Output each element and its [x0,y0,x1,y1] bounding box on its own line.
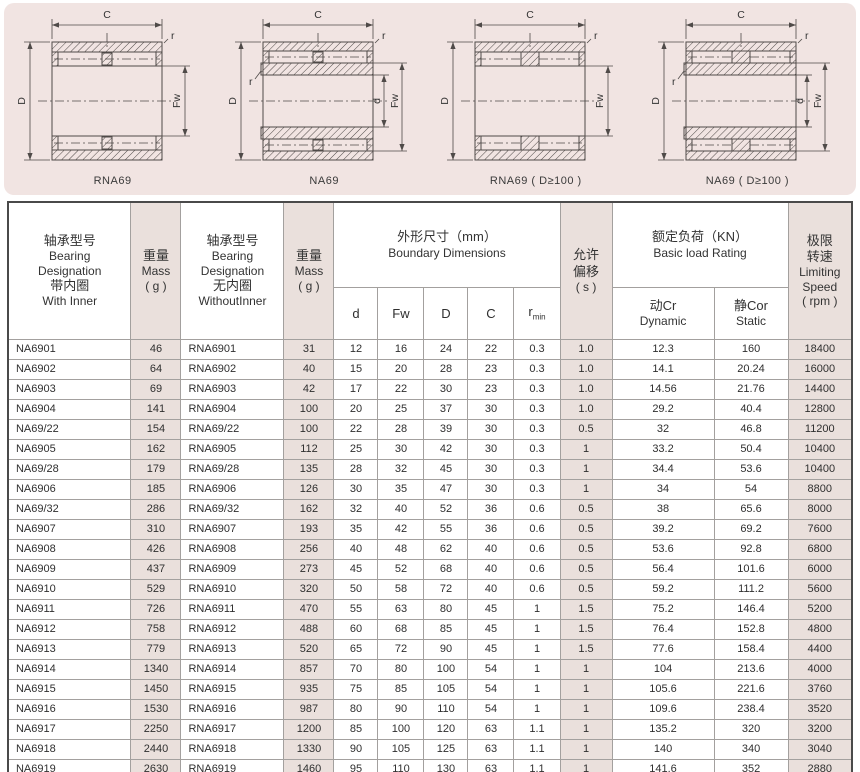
value-cell: 29.2 [612,399,714,419]
table-row: NA6909437RNA6909273455268400.60.556.4101… [8,559,852,579]
drawings-panel: C D [4,3,856,195]
value-cell: 63 [468,719,514,739]
value-cell: 20 [334,399,378,419]
value-cell: 21.76 [714,379,788,399]
value-cell: 104 [612,659,714,679]
value-cell: 126 [284,479,334,499]
value-cell: 34.4 [612,459,714,479]
designation-cell: NA6918 [8,739,131,759]
value-cell: 20.24 [714,359,788,379]
value-cell: 1 [514,659,560,679]
value-cell: 54 [714,479,788,499]
value-cell: 85 [378,679,424,699]
designation-cell: RNA6910 [181,579,284,599]
table-row: NA69151450RNA691593575851055411105.6221.… [8,679,852,699]
designation-cell: NA69/28 [8,459,131,479]
value-cell: 80 [378,659,424,679]
value-cell: 30 [468,479,514,499]
dim-label-Fw: Fw [389,94,401,108]
value-cell: 8000 [788,499,852,519]
label-r: r [798,30,809,43]
value-cell: 109.6 [612,699,714,719]
value-cell: 45 [334,559,378,579]
value-cell: 141.6 [612,759,714,772]
dim-label-r: r [805,30,809,42]
value-cell: 60 [334,619,378,639]
value-cell: 53.6 [612,539,714,559]
value-cell: 160 [714,339,788,359]
value-cell: 0.3 [514,399,560,419]
dim-label-r: r [171,30,175,42]
value-cell: 63 [378,599,424,619]
col-header-rmin: rmin [514,287,560,339]
value-cell: 47 [424,479,468,499]
value-cell: 1 [560,439,612,459]
value-cell: 100 [424,659,468,679]
designation-cell: NA6910 [8,579,131,599]
value-cell: 12 [334,339,378,359]
col-header-d: d [334,287,378,339]
dim-label-D: D [16,97,28,105]
col-header-static: 静Cor Static [714,287,788,339]
value-cell: 4400 [788,639,852,659]
bearing-section-rna69: C D [10,6,216,174]
table-row: NA69/22154RNA69/22100222839300.30.53246.… [8,419,852,439]
value-cell: 488 [284,619,334,639]
label-r: r [164,30,175,43]
value-cell: 100 [378,719,424,739]
value-cell: 320 [284,579,334,599]
dim-label-d: d [371,98,383,104]
value-cell: 0.6 [514,519,560,539]
value-cell: 100 [284,419,334,439]
value-cell: 35 [334,519,378,539]
value-cell: 179 [131,459,181,479]
value-cell: 32 [612,419,714,439]
value-cell: 22 [468,339,514,359]
designation-cell: NA69/22 [8,419,131,439]
value-cell: 23 [468,359,514,379]
dim-label-C: C [103,9,111,21]
value-cell: 45 [424,459,468,479]
label-r-left: r [672,71,684,88]
value-cell: 135.2 [612,719,714,739]
dim-label-Fw: Fw [812,94,824,108]
designation-cell: NA6901 [8,339,131,359]
value-cell: 53.6 [714,459,788,479]
value-cell: 110 [424,699,468,719]
dim-label-C: C [738,9,746,21]
drawing-caption: NA69 [309,175,339,187]
col-group-boundary-dimensions: 外形尺寸（mm） Boundary Dimensions [334,202,560,287]
value-cell: 55 [424,519,468,539]
value-cell: 8800 [788,479,852,499]
designation-cell: RNA69/28 [181,459,284,479]
value-cell: 779 [131,639,181,659]
value-cell: 1 [560,759,612,772]
value-cell: 31 [284,339,334,359]
value-cell: 56.4 [612,559,714,579]
value-cell: 39 [424,419,468,439]
value-cell: 85 [334,719,378,739]
value-cell: 72 [424,579,468,599]
dim-label-C: C [526,9,534,21]
value-cell: 30 [334,479,378,499]
dim-label-C: C [314,9,322,21]
value-cell: 2880 [788,759,852,772]
value-cell: 352 [714,759,788,772]
value-cell: 130 [424,759,468,772]
table-row: NA69172250RNA6917120085100120631.11135.2… [8,719,852,739]
value-cell: 256 [284,539,334,559]
value-cell: 437 [131,559,181,579]
designation-cell: RNA6907 [181,519,284,539]
value-cell: 5200 [788,599,852,619]
value-cell: 46 [131,339,181,359]
designation-cell: RNA6905 [181,439,284,459]
dim-label-r2: r [672,76,676,88]
table-row: NA6904141RNA6904100202537300.31.029.240.… [8,399,852,419]
value-cell: 54 [468,679,514,699]
value-cell: 24 [424,339,468,359]
value-cell: 16 [378,339,424,359]
value-cell: 20 [378,359,424,379]
value-cell: 40 [468,559,514,579]
value-cell: 12.3 [612,339,714,359]
value-cell: 37 [424,399,468,419]
dim-label-r2: r [249,76,253,88]
value-cell: 54 [468,699,514,719]
value-cell: 18400 [788,339,852,359]
designation-cell: RNA6903 [181,379,284,399]
value-cell: 32 [378,459,424,479]
drawing-na69-d100: C D [644,6,850,187]
value-cell: 33.2 [612,439,714,459]
designation-cell: RNA6914 [181,659,284,679]
value-cell: 120 [424,719,468,739]
value-cell: 1.0 [560,399,612,419]
value-cell: 42 [284,379,334,399]
value-cell: 92.8 [714,539,788,559]
col-header-mass-2: 重量 Mass ( g ) [284,202,334,339]
col-header-offset: 允许 偏移 ( s ) [560,202,612,339]
drawing-caption: RNA69 [94,175,132,187]
value-cell: 36 [468,519,514,539]
value-cell: 38 [612,499,714,519]
value-cell: 105.6 [612,679,714,699]
value-cell: 35 [378,479,424,499]
value-cell: 2440 [131,739,181,759]
value-cell: 40 [334,539,378,559]
value-cell: 110 [378,759,424,772]
designation-cell: NA6914 [8,659,131,679]
value-cell: 470 [284,599,334,619]
value-cell: 76.4 [612,619,714,639]
value-cell: 64 [131,359,181,379]
dim-label-D: D [650,97,662,105]
value-cell: 111.2 [714,579,788,599]
value-cell: 529 [131,579,181,599]
value-cell: 30 [424,379,468,399]
value-cell: 45 [468,619,514,639]
value-cell: 25 [378,399,424,419]
designation-cell: NA6909 [8,559,131,579]
value-cell: 63 [468,759,514,772]
designation-cell: NA6908 [8,539,131,559]
value-cell: 85 [424,619,468,639]
table-header: 轴承型号 Bearing Designation 带内圈 With Inner … [8,202,852,339]
value-cell: 0.3 [514,379,560,399]
value-cell: 14.1 [612,359,714,379]
designation-cell: NA6917 [8,719,131,739]
value-cell: 16000 [788,359,852,379]
value-cell: 1.0 [560,379,612,399]
value-cell: 25 [334,439,378,459]
value-cell: 105 [378,739,424,759]
col-header-limiting-speed: 极限 转速 Limiting Speed ( rpm ) [788,202,852,339]
dim-label-D: D [227,97,239,105]
value-cell: 0.3 [514,459,560,479]
label-r: r [375,30,386,43]
value-cell: 726 [131,599,181,619]
drawing-na69: C D [221,6,427,187]
designation-cell: RNA6919 [181,759,284,772]
drawing-rna69: C D [10,6,216,187]
designation-cell: NA6916 [8,699,131,719]
value-cell: 1 [560,679,612,699]
value-cell: 90 [424,639,468,659]
value-cell: 1 [560,719,612,739]
table-row: NA6913779RNA69135206572904511.577.6158.4… [8,639,852,659]
designation-cell: RNA6909 [181,559,284,579]
value-cell: 221.6 [714,679,788,699]
value-cell: 17 [334,379,378,399]
value-cell: 30 [378,439,424,459]
drawing-caption: RNA69 ( D≥100 ) [490,175,582,187]
value-cell: 90 [334,739,378,759]
value-cell: 80 [424,599,468,619]
catalog-page: C D [0,0,860,772]
value-cell: 0.6 [514,559,560,579]
value-cell: 23 [468,379,514,399]
drawing-rna69-d100: C D [433,6,639,187]
value-cell: 426 [131,539,181,559]
value-cell: 1.0 [560,359,612,379]
value-cell: 40.4 [714,399,788,419]
value-cell: 1 [514,699,560,719]
value-cell: 69.2 [714,519,788,539]
value-cell: 28 [424,359,468,379]
value-cell: 11200 [788,419,852,439]
dim-Fw: Fw [796,63,830,151]
value-cell: 36 [468,499,514,519]
dim-label-r: r [594,30,598,42]
value-cell: 0.3 [514,419,560,439]
value-cell: 45 [468,599,514,619]
value-cell: 52 [378,559,424,579]
table-row: NA69/32286RNA69/32162324052360.60.53865.… [8,499,852,519]
value-cell: 987 [284,699,334,719]
value-cell: 1 [514,619,560,639]
value-cell: 30 [468,459,514,479]
dim-label-d: d [794,98,806,104]
col-header-with-inner: 轴承型号 Bearing Designation 带内圈 With Inner [8,202,131,339]
table-row: NA69141340RNA691485770801005411104213.64… [8,659,852,679]
value-cell: 75.2 [612,599,714,619]
value-cell: 1 [514,679,560,699]
value-cell: 65.6 [714,499,788,519]
value-cell: 40 [468,579,514,599]
value-cell: 3200 [788,719,852,739]
dim-label-Fw: Fw [594,94,606,108]
value-cell: 101.6 [714,559,788,579]
value-cell: 7600 [788,519,852,539]
value-cell: 59.2 [612,579,714,599]
dim-Fw: Fw [373,63,407,151]
value-cell: 45 [468,639,514,659]
value-cell: 3040 [788,739,852,759]
value-cell: 193 [284,519,334,539]
value-cell: 273 [284,559,334,579]
value-cell: 32 [334,499,378,519]
table-row: NA690146RNA690131121624220.31.012.316018… [8,339,852,359]
value-cell: 1.5 [560,619,612,639]
value-cell: 28 [378,419,424,439]
value-cell: 48 [378,539,424,559]
value-cell: 105 [424,679,468,699]
dim-label-Fw: Fw [171,94,183,108]
value-cell: 758 [131,619,181,639]
designation-cell: NA6911 [8,599,131,619]
value-cell: 1450 [131,679,181,699]
value-cell: 146.4 [714,599,788,619]
value-cell: 70 [334,659,378,679]
value-cell: 0.5 [560,419,612,439]
value-cell: 0.5 [560,499,612,519]
value-cell: 4800 [788,619,852,639]
designation-cell: RNA6917 [181,719,284,739]
value-cell: 1.5 [560,639,612,659]
value-cell: 2250 [131,719,181,739]
value-cell: 0.5 [560,559,612,579]
value-cell: 28 [334,459,378,479]
table-row: NA69/28179RNA69/28135283245300.3134.453.… [8,459,852,479]
designation-cell: RNA6911 [181,599,284,619]
value-cell: 52 [424,499,468,519]
dim-label-D: D [439,97,451,105]
value-cell: 0.5 [560,539,612,559]
value-cell: 22 [334,419,378,439]
bearing-section-na69: C D [221,6,427,174]
value-cell: 1 [514,599,560,619]
value-cell: 1 [514,639,560,659]
designation-cell: NA6907 [8,519,131,539]
value-cell: 1.1 [514,759,560,772]
value-cell: 340 [714,739,788,759]
value-cell: 68 [378,619,424,639]
value-cell: 1460 [284,759,334,772]
designation-cell: NA6913 [8,639,131,659]
table-row: NA69192630RNA6919146095110130631.11141.6… [8,759,852,772]
value-cell: 310 [131,519,181,539]
value-cell: 14.56 [612,379,714,399]
value-cell: 0.3 [514,479,560,499]
value-cell: 30 [468,419,514,439]
value-cell: 69 [131,379,181,399]
value-cell: 0.6 [514,539,560,559]
value-cell: 1340 [131,659,181,679]
dim-label-r: r [382,30,386,42]
dim-Fw: Fw [585,66,613,136]
designation-cell: RNA6916 [181,699,284,719]
value-cell: 320 [714,719,788,739]
designation-cell: NA6912 [8,619,131,639]
designation-cell: NA69/32 [8,499,131,519]
designation-cell: RNA69/32 [181,499,284,519]
designation-cell: NA6903 [8,379,131,399]
value-cell: 162 [284,499,334,519]
table-row: NA690264RNA690240152028230.31.014.120.24… [8,359,852,379]
value-cell: 30 [468,439,514,459]
designation-cell: RNA6901 [181,339,284,359]
col-header-D: D [424,287,468,339]
value-cell: 90 [378,699,424,719]
value-cell: 30 [468,399,514,419]
value-cell: 1 [560,479,612,499]
value-cell: 1.5 [560,599,612,619]
bearing-section-rna69-d100: C D [433,6,639,174]
table-row: NA6911726RNA69114705563804511.575.2146.4… [8,599,852,619]
bearing-table: 轴承型号 Bearing Designation 带内圈 With Inner … [7,201,853,772]
value-cell: 34 [612,479,714,499]
designation-cell: NA6905 [8,439,131,459]
value-cell: 286 [131,499,181,519]
value-cell: 15 [334,359,378,379]
value-cell: 0.3 [514,439,560,459]
value-cell: 1 [560,459,612,479]
table-row: NA6908426RNA6908256404862400.60.553.692.… [8,539,852,559]
designation-cell: RNA69/22 [181,419,284,439]
value-cell: 1.1 [514,719,560,739]
table-row: NA6905162RNA6905112253042300.3133.250.41… [8,439,852,459]
drawing-caption: NA69 ( D≥100 ) [706,175,789,187]
value-cell: 22 [378,379,424,399]
value-cell: 185 [131,479,181,499]
value-cell: 72 [378,639,424,659]
value-cell: 5600 [788,579,852,599]
value-cell: 50.4 [714,439,788,459]
label-r-left: r [249,71,261,88]
value-cell: 162 [131,439,181,459]
table-row: NA6906185RNA6906126303547300.3134548800 [8,479,852,499]
table-body: NA690146RNA690131121624220.31.012.316018… [8,339,852,772]
value-cell: 68 [424,559,468,579]
value-cell: 80 [334,699,378,719]
value-cell: 140 [612,739,714,759]
value-cell: 158.4 [714,639,788,659]
bearing-section-na69-d100: C D [644,6,850,174]
table-row: NA69182440RNA6918133090105125631.1114034… [8,739,852,759]
value-cell: 6000 [788,559,852,579]
value-cell: 65 [334,639,378,659]
table-row: NA69161530RNA691698780901105411109.6238.… [8,699,852,719]
designation-cell: RNA6904 [181,399,284,419]
designation-cell: NA6902 [8,359,131,379]
value-cell: 95 [334,759,378,772]
value-cell: 0.3 [514,339,560,359]
col-header-mass-1: 重量 Mass ( g ) [131,202,181,339]
col-header-fw: Fw [378,287,424,339]
